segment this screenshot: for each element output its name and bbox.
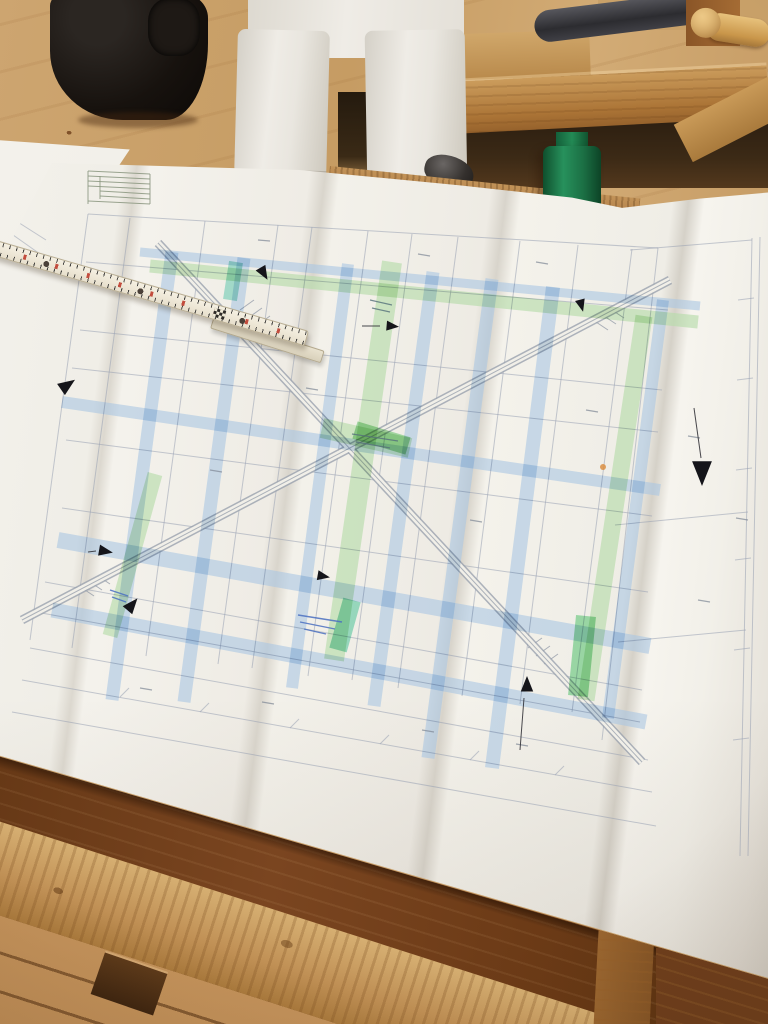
backpack <box>50 0 208 120</box>
right-plank-light <box>593 929 654 1024</box>
workshop-photo <box>0 0 768 1024</box>
person-left-leg <box>234 29 330 181</box>
ruler-scale-mark <box>212 308 226 320</box>
